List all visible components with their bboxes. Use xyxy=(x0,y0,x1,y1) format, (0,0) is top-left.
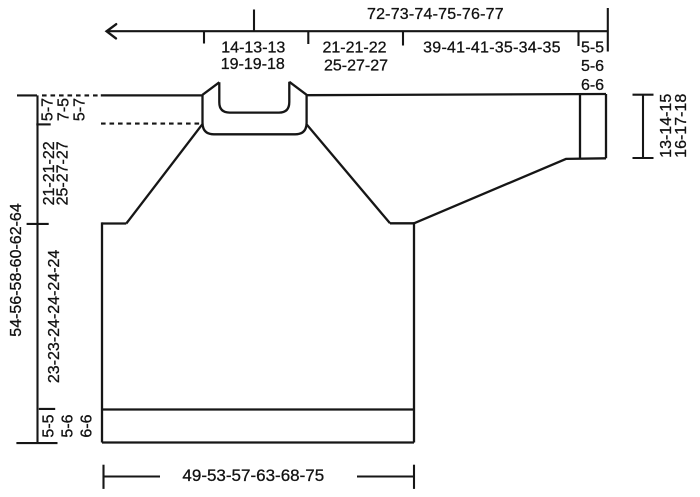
svg-text:5-7: 5-7 xyxy=(72,98,89,121)
svg-text:23-23-24-24-24-24: 23-23-24-24-24-24 xyxy=(46,250,63,384)
svg-text:25-27-27: 25-27-27 xyxy=(55,141,72,205)
svg-text:25-27-27: 25-27-27 xyxy=(324,57,388,74)
svg-text:49-53-57-63-68-75: 49-53-57-63-68-75 xyxy=(182,466,324,485)
svg-text:16-17-18: 16-17-18 xyxy=(673,94,690,158)
svg-text:19-19-18: 19-19-18 xyxy=(221,56,285,73)
svg-text:6-6: 6-6 xyxy=(581,77,604,94)
svg-text:6-6: 6-6 xyxy=(78,414,95,437)
svg-text:72-73-74-75-76-77: 72-73-74-75-76-77 xyxy=(367,6,504,23)
svg-text:14-13-13: 14-13-13 xyxy=(221,39,285,56)
svg-text:5-5: 5-5 xyxy=(581,39,604,56)
svg-text:54-56-58-60-62-64: 54-56-58-60-62-64 xyxy=(8,203,25,337)
svg-text:7-5: 7-5 xyxy=(56,98,73,121)
svg-text:39-41-41-35-34-35: 39-41-41-35-34-35 xyxy=(423,40,561,57)
svg-text:21-21-22: 21-21-22 xyxy=(322,39,386,56)
svg-text:5-7: 5-7 xyxy=(40,98,57,121)
svg-text:5-6: 5-6 xyxy=(59,414,76,437)
svg-text:5-5: 5-5 xyxy=(41,414,58,437)
svg-text:5-6: 5-6 xyxy=(581,58,604,75)
